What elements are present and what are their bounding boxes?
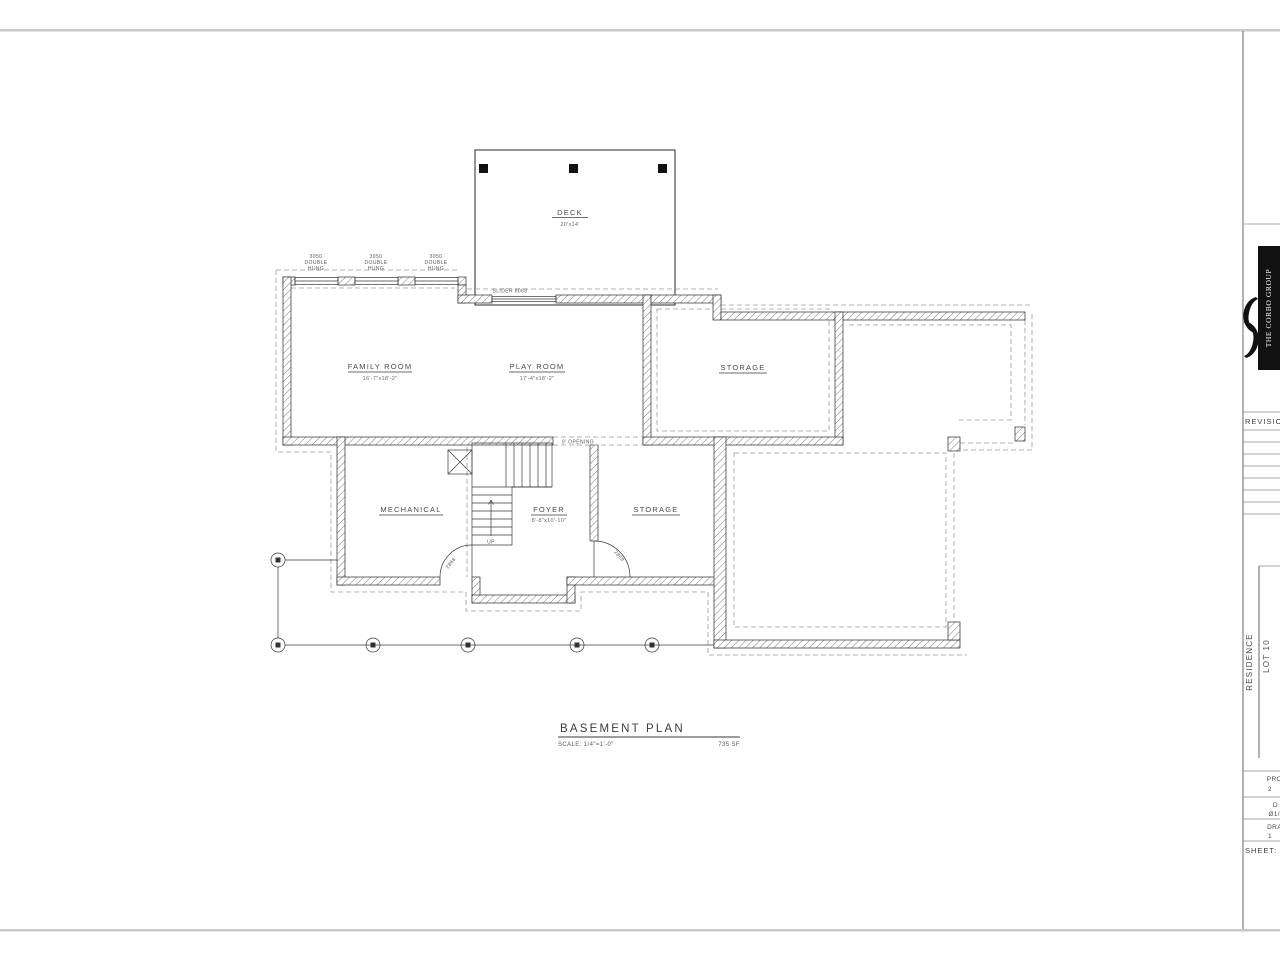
- foundation-dashed-outlines: [276, 270, 1032, 655]
- deck-post: [479, 164, 488, 173]
- slider-label: SLIDER 8068: [493, 289, 528, 295]
- foyer-dim: 8'-8"x10'-10": [532, 518, 567, 524]
- opening-label: 9' OPENING: [562, 440, 594, 446]
- deck-area: DECK 20'x14': [475, 150, 675, 305]
- date-label: D: [1273, 802, 1278, 809]
- logo-text: THE CORBO GROUP: [1264, 269, 1273, 348]
- sheet-top-edge: [0, 29, 1280, 32]
- sheet-bottom-edge: [0, 929, 1280, 932]
- stairs-up-label: UP: [487, 540, 495, 546]
- sheet-info-section: PRO 2 D Ø1/ DRA 1 SHEET:: [1243, 771, 1280, 855]
- deck-dim: 20'x14': [560, 222, 579, 228]
- lot-label: LOT 10: [1262, 639, 1271, 673]
- window-double-hung: 3050 DOUBLE HUNG: [415, 254, 458, 285]
- window-double-hung: 3050 DOUBLE HUNG: [295, 254, 338, 285]
- door-size-label: 2868: [445, 557, 458, 571]
- plan-area: 735 SF: [718, 742, 740, 748]
- svg-text:HUNG: HUNG: [308, 266, 324, 272]
- door-storage: 2868: [594, 541, 630, 577]
- window-double-hung: 3050 DOUBLE HUNG: [355, 254, 398, 285]
- date-value: Ø1/: [1268, 811, 1280, 818]
- storage-upper-label: STORAGE: [721, 363, 766, 372]
- plan-title-block: BASEMENT PLAN SCALE: 1/4"=1'-0" 735 SF: [558, 723, 740, 748]
- slider-door: SLIDER 8068: [492, 289, 556, 302]
- project-name-section: RESIDENCE LOT 10: [1245, 566, 1280, 758]
- project-label: PRO: [1267, 776, 1280, 783]
- deck-post: [569, 164, 578, 173]
- logo-swirl-icon: [1243, 322, 1259, 358]
- drawn-label: DRA: [1267, 824, 1280, 831]
- door-size-label: 2868: [612, 550, 625, 563]
- project-value: 2: [1268, 786, 1272, 793]
- family-room-dim: 16'-7"x18'-2": [363, 376, 398, 382]
- residence-label: RESIDENCE: [1245, 633, 1254, 690]
- revisions-section: REVISIONS: [1243, 412, 1280, 514]
- svg-text:HUNG: HUNG: [368, 266, 384, 272]
- opening-9ft: 9' OPENING: [553, 437, 643, 446]
- mechanical-label: MECHANICAL: [380, 505, 441, 514]
- play-room-label: PLAY ROOM: [510, 362, 565, 371]
- corbo-group-logo: THE CORBO GROUP: [1243, 246, 1280, 370]
- staircase: UP: [448, 443, 552, 546]
- storage-lower-label: STORAGE: [634, 505, 679, 514]
- drawn-value: 1: [1268, 833, 1272, 840]
- titleblock-strip: THE CORBO GROUP REVISIONS RESIDENCE LOT …: [1243, 31, 1280, 929]
- doors: 2868 2868: [440, 541, 630, 577]
- windows: 3050 DOUBLE HUNG 3050 DOUBLE HUNG 3050 D…: [295, 254, 458, 285]
- svg-text:HUNG: HUNG: [428, 266, 444, 272]
- porch-post: [271, 553, 285, 567]
- shaft-box: [448, 450, 472, 474]
- basement-plan-sheet: DECK 20'x14': [0, 0, 1280, 960]
- sheet-label: SHEET:: [1245, 846, 1277, 855]
- deck-label: DECK: [557, 208, 583, 217]
- revisions-label: REVISIONS: [1245, 417, 1280, 426]
- foyer-label: FOYER: [533, 505, 565, 514]
- deck-post: [658, 164, 667, 173]
- porch-post: [271, 638, 285, 652]
- play-room-dim: 17'-4"x18'-2": [520, 376, 555, 382]
- plan-scale: SCALE: 1/4"=1'-0": [558, 742, 614, 748]
- family-room-label: FAMILY ROOM: [348, 362, 413, 371]
- plan-title: BASEMENT PLAN: [560, 723, 685, 735]
